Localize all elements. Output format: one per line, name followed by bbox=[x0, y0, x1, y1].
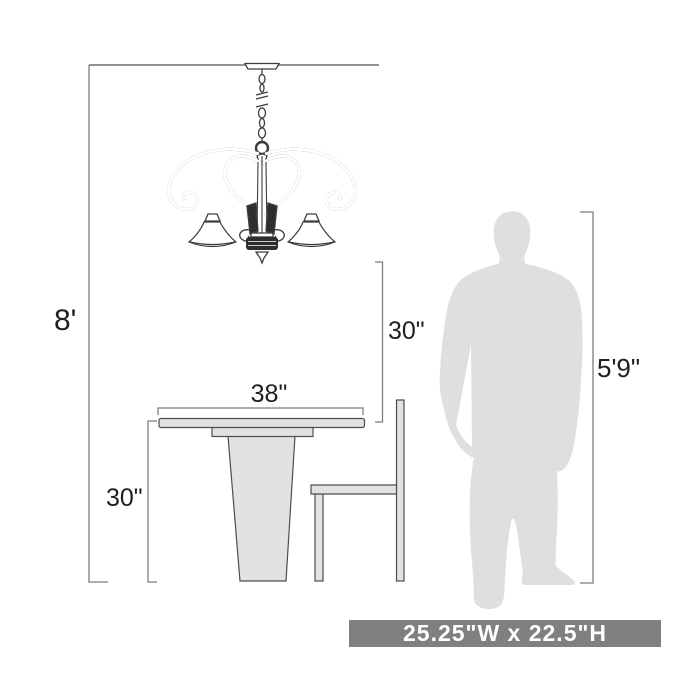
ceiling-height-label: 8' bbox=[54, 305, 76, 337]
dim-line-table-width bbox=[158, 408, 363, 415]
diagram-canvas bbox=[0, 0, 700, 700]
person-height-label: 5'9" bbox=[597, 355, 640, 382]
dim-line-fixture-to-table bbox=[375, 262, 383, 422]
table-height-label: 30" bbox=[106, 485, 143, 511]
person-silhouette bbox=[440, 211, 583, 609]
table-top bbox=[159, 419, 365, 428]
table-width-label: 38" bbox=[239, 381, 299, 407]
chandelier-canopy bbox=[245, 64, 279, 75]
chair-seat bbox=[311, 485, 397, 494]
chandelier-graphic bbox=[169, 64, 355, 264]
chandelier-chain bbox=[256, 75, 268, 163]
chandelier-finial bbox=[256, 252, 268, 263]
fixture-to-table-label: 30" bbox=[388, 318, 425, 344]
chair-back-post bbox=[397, 400, 405, 581]
product-size-banner: 25.25"W x 22.5"H bbox=[349, 620, 661, 647]
chair-front-leg bbox=[315, 493, 323, 581]
dim-line-person-height bbox=[580, 212, 593, 583]
table-pedestal bbox=[228, 436, 295, 581]
dim-line-table-height bbox=[148, 421, 157, 582]
chandelier-hub bbox=[246, 237, 278, 250]
chandelier-column bbox=[240, 156, 285, 263]
dimension-diagram: { "diagram": { "type": "product-dimensio… bbox=[0, 0, 700, 700]
table-apron bbox=[212, 427, 313, 437]
table-graphic bbox=[159, 419, 365, 582]
